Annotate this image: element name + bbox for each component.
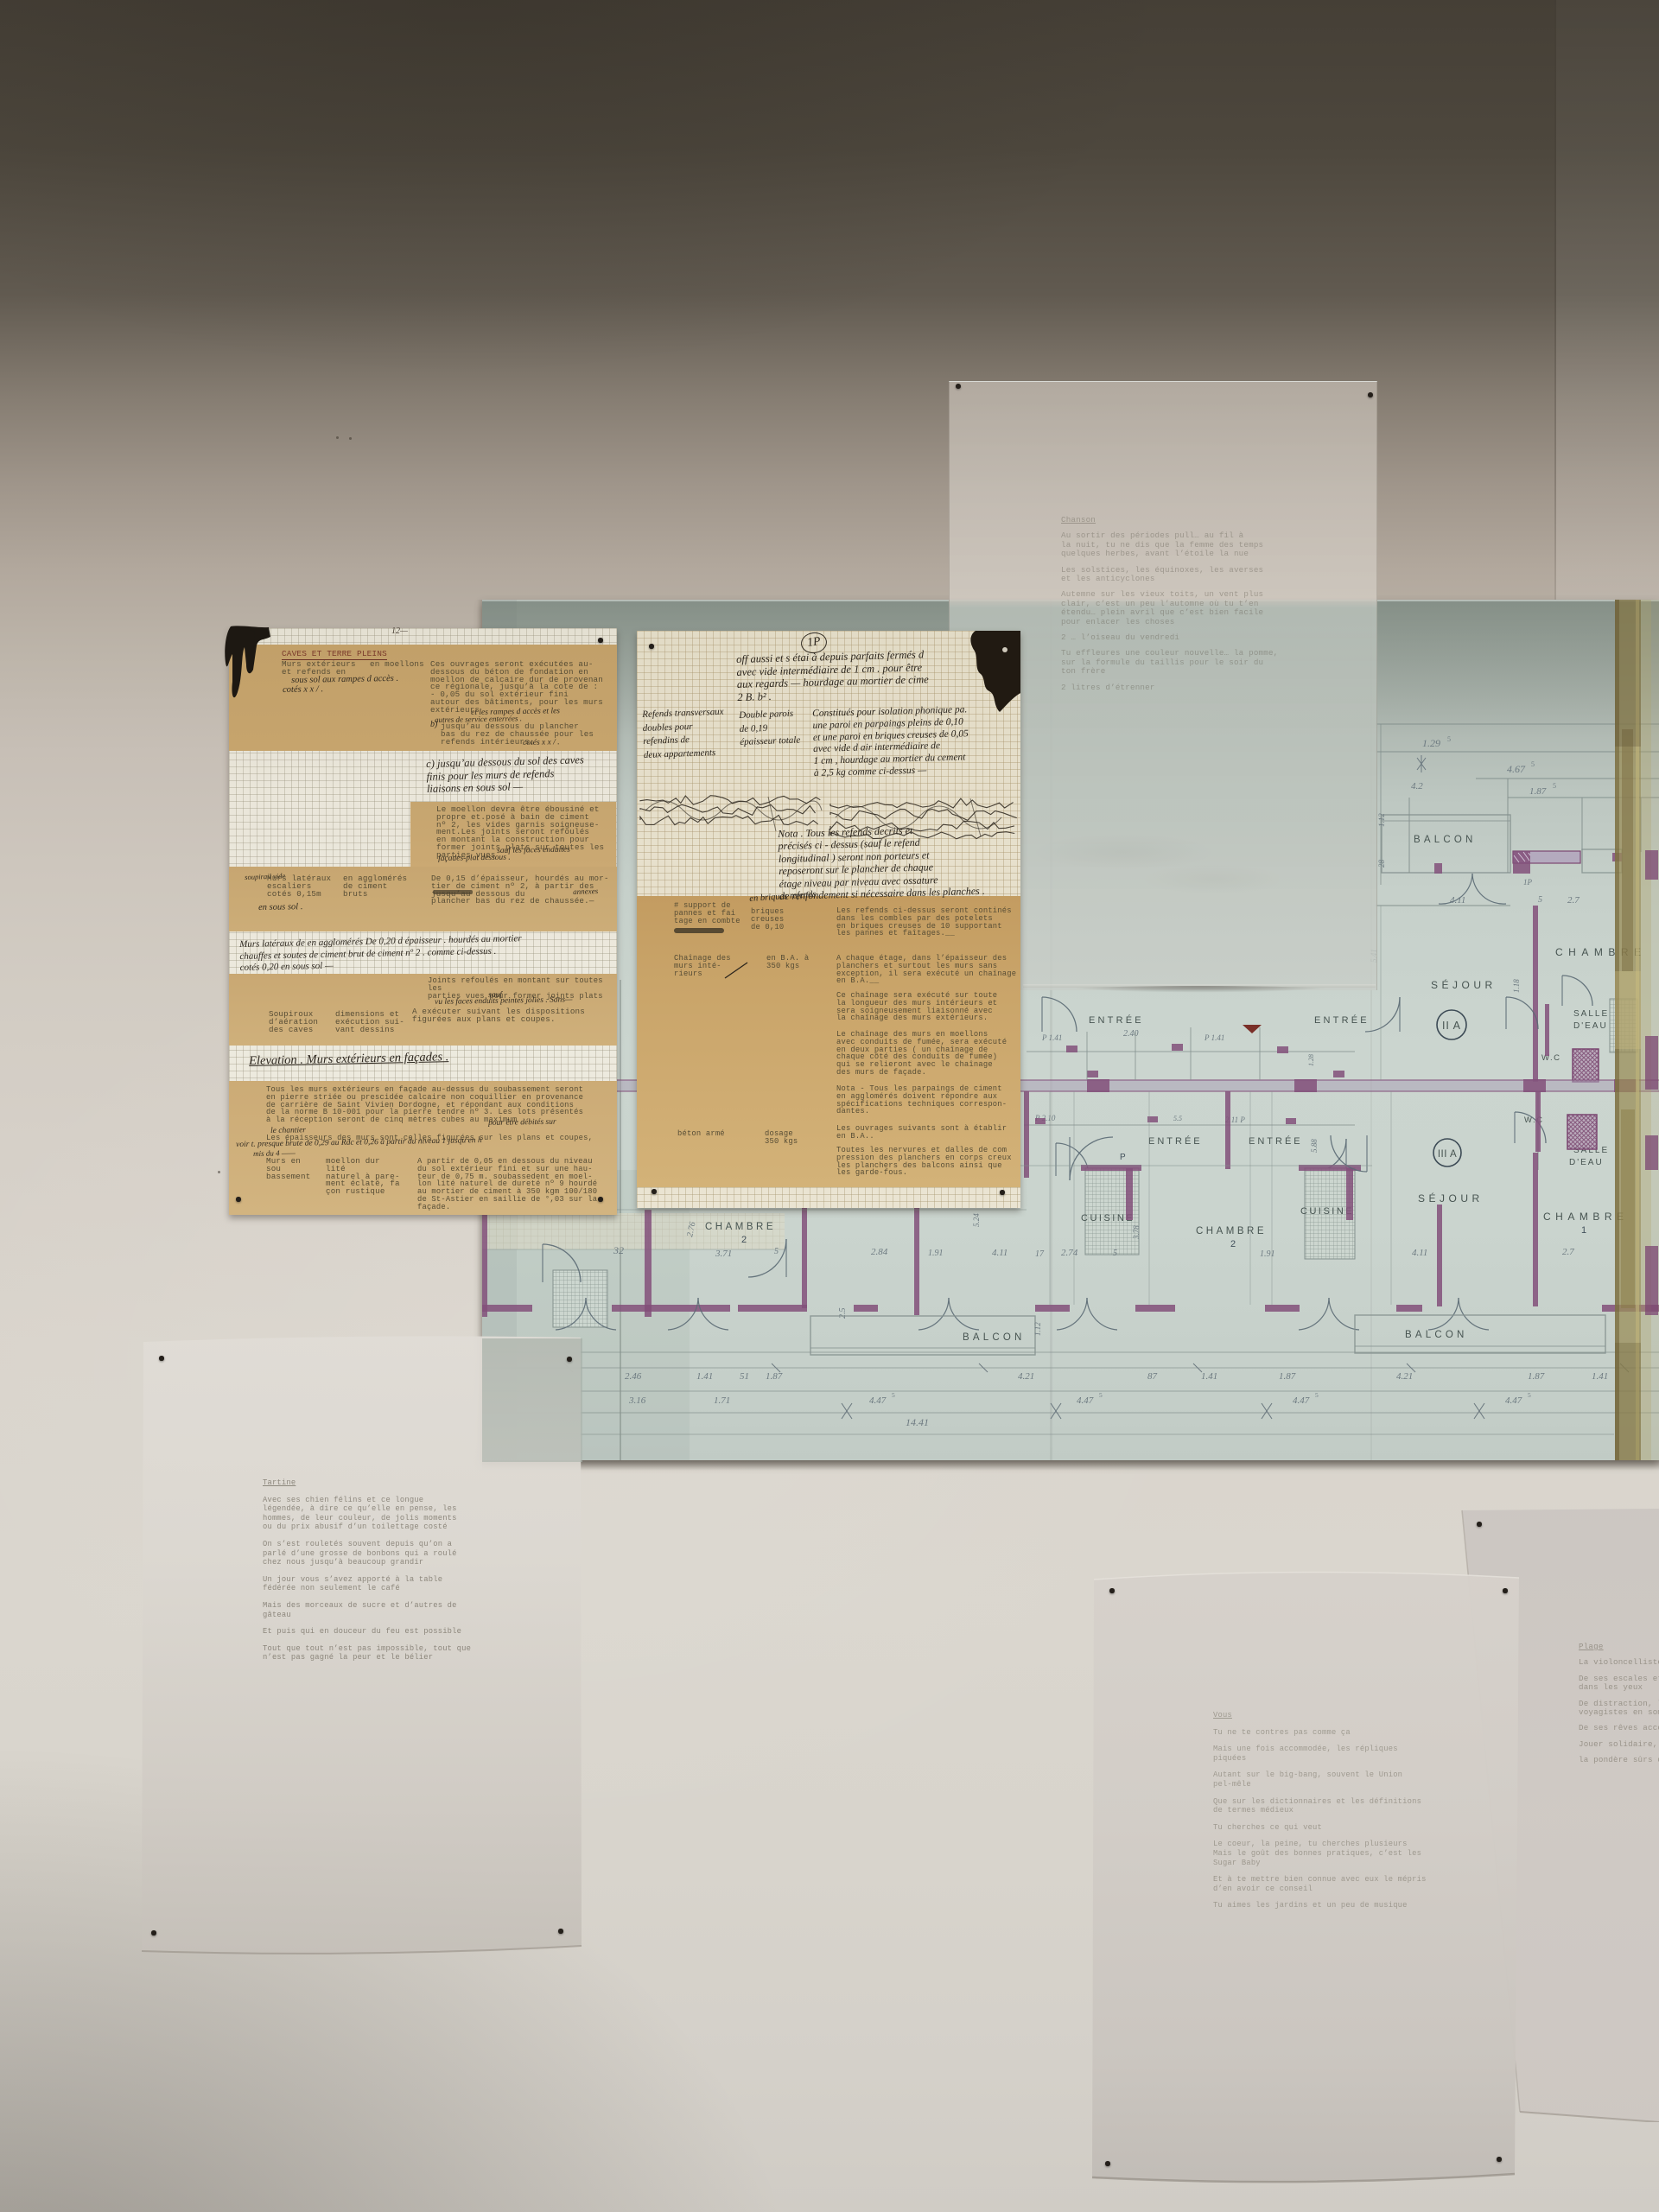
svg-text:ENTRÉE: ENTRÉE bbox=[1089, 1014, 1144, 1026]
svg-text:II A: II A bbox=[1442, 1020, 1461, 1032]
svg-text:P: P bbox=[1120, 1153, 1126, 1162]
svg-text:CHAMBRE: CHAMBRE bbox=[705, 1222, 776, 1232]
svg-text:4.47: 4.47 bbox=[869, 1395, 887, 1406]
svg-text:1.41: 1.41 bbox=[1201, 1371, 1217, 1382]
svg-text:2.7: 2.7 bbox=[1562, 1247, 1574, 1257]
svg-text:4.11: 4.11 bbox=[1450, 895, 1465, 906]
svg-text:1.71: 1.71 bbox=[714, 1395, 730, 1406]
svg-text:14.41: 14.41 bbox=[906, 1416, 929, 1428]
svg-text:3.71: 3.71 bbox=[715, 1249, 732, 1259]
svg-text:1.41: 1.41 bbox=[1592, 1371, 1608, 1382]
svg-text:5: 5 bbox=[1538, 895, 1542, 905]
svg-text:32: 32 bbox=[613, 1244, 624, 1256]
svg-text:1.29: 1.29 bbox=[1422, 737, 1440, 749]
svg-text:CUISINE: CUISINE bbox=[1300, 1206, 1354, 1217]
svg-text:4.67: 4.67 bbox=[1507, 763, 1526, 775]
svg-text:1.12: 1.12 bbox=[1033, 1322, 1042, 1336]
svg-text:D'EAU: D'EAU bbox=[1569, 1158, 1604, 1167]
svg-text:4.21: 4.21 bbox=[1018, 1371, 1034, 1382]
svg-text:1.87: 1.87 bbox=[1529, 786, 1547, 797]
svg-text:2: 2 bbox=[1230, 1239, 1236, 1249]
svg-text:SÉJOUR: SÉJOUR bbox=[1431, 978, 1497, 991]
svg-text:BALCON: BALCON bbox=[1414, 835, 1477, 845]
svg-text:2.74: 2.74 bbox=[1061, 1248, 1078, 1258]
svg-text:1.12: 1.12 bbox=[1377, 813, 1386, 827]
svg-text:3.16: 3.16 bbox=[628, 1395, 646, 1406]
svg-text:1: 1 bbox=[1581, 1225, 1586, 1236]
svg-text:1.91: 1.91 bbox=[1260, 1249, 1275, 1259]
svg-text:4.47: 4.47 bbox=[1505, 1395, 1522, 1406]
svg-text:17: 17 bbox=[1035, 1249, 1045, 1259]
svg-text:5.88: 5.88 bbox=[1310, 1139, 1319, 1153]
svg-text:2.40: 2.40 bbox=[1123, 1029, 1139, 1039]
svg-text:ENTRÉE: ENTRÉE bbox=[1148, 1135, 1203, 1147]
svg-text:CHAMBRE: CHAMBRE bbox=[1196, 1226, 1267, 1236]
svg-text:5: 5 bbox=[1553, 782, 1556, 790]
svg-text:D'EAU: D'EAU bbox=[1573, 1021, 1608, 1031]
svg-text:SALLE: SALLE bbox=[1573, 1009, 1609, 1019]
svg-text:ENTRÉE: ENTRÉE bbox=[1314, 1014, 1370, 1026]
svg-text:4.47: 4.47 bbox=[1077, 1395, 1094, 1406]
svg-text:4.11: 4.11 bbox=[1412, 1248, 1427, 1258]
svg-text:5: 5 bbox=[1315, 1391, 1319, 1399]
svg-text:4.21: 4.21 bbox=[1396, 1371, 1413, 1382]
svg-text:1.28: 1.28 bbox=[1307, 1054, 1315, 1066]
svg-text:1.41: 1.41 bbox=[696, 1371, 713, 1382]
svg-text:2.5: 2.5 bbox=[838, 1308, 848, 1319]
svg-text:SÉJOUR: SÉJOUR bbox=[1418, 1192, 1484, 1205]
svg-text:ENTRÉE: ENTRÉE bbox=[1249, 1135, 1303, 1147]
svg-text:5: 5 bbox=[892, 1391, 895, 1399]
svg-text:5.5: 5.5 bbox=[1173, 1115, 1182, 1122]
svg-text:5: 5 bbox=[1099, 1391, 1103, 1399]
svg-text:4.2: 4.2 bbox=[1411, 781, 1423, 791]
svg-text:3.78: 3.78 bbox=[1132, 1225, 1141, 1240]
svg-text:5: 5 bbox=[774, 1247, 779, 1256]
svg-text:2: 2 bbox=[741, 1235, 747, 1245]
svg-text:1.18: 1.18 bbox=[1512, 979, 1521, 993]
svg-text:5: 5 bbox=[1528, 1391, 1531, 1399]
svg-text:1P: 1P bbox=[1523, 878, 1533, 887]
svg-text:4.47: 4.47 bbox=[1293, 1395, 1310, 1406]
svg-text:5: 5 bbox=[1113, 1249, 1117, 1258]
svg-text:5: 5 bbox=[1447, 735, 1451, 743]
svg-text:1.91: 1.91 bbox=[928, 1249, 944, 1258]
svg-text:III A: III A bbox=[1438, 1149, 1457, 1160]
svg-text:5.24: 5.24 bbox=[972, 1213, 981, 1227]
svg-text:87: 87 bbox=[1147, 1371, 1158, 1382]
svg-text:W.C: W.C bbox=[1541, 1053, 1560, 1063]
svg-text:P 1.41: P 1.41 bbox=[1041, 1033, 1062, 1042]
svg-text:1.87: 1.87 bbox=[1279, 1371, 1296, 1382]
svg-text:28: 28 bbox=[1377, 860, 1386, 868]
svg-text:5: 5 bbox=[1531, 760, 1535, 768]
svg-text:W.C: W.C bbox=[1524, 1116, 1543, 1125]
svg-text:2.84: 2.84 bbox=[871, 1247, 888, 1257]
svg-text:4.11: 4.11 bbox=[992, 1248, 1007, 1258]
svg-text:2.46: 2.46 bbox=[625, 1371, 642, 1382]
svg-text:BALCON: BALCON bbox=[963, 1332, 1026, 1343]
svg-text:P 1.41: P 1.41 bbox=[1204, 1033, 1224, 1042]
svg-text:51: 51 bbox=[740, 1371, 749, 1382]
svg-text:1.87: 1.87 bbox=[766, 1371, 783, 1382]
svg-text:1.87: 1.87 bbox=[1528, 1371, 1545, 1382]
svg-text:2.7: 2.7 bbox=[1567, 895, 1580, 906]
svg-text:BALCON: BALCON bbox=[1405, 1330, 1468, 1340]
